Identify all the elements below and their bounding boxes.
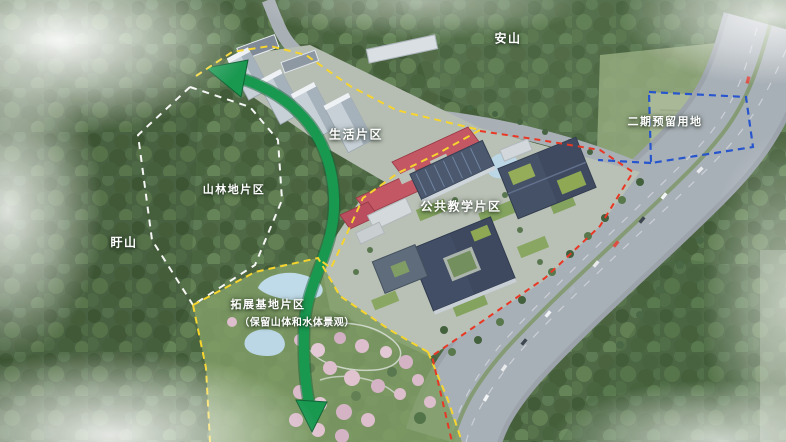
campus-masterplan-aerial-rendering: 安山 二期预留用地 生活片区 山林地片区 盱山 公共教学片区 拓展基地片区 （保… (0, 0, 786, 442)
site-plan-canvas (0, 0, 786, 442)
fog-clouds (0, 0, 786, 442)
